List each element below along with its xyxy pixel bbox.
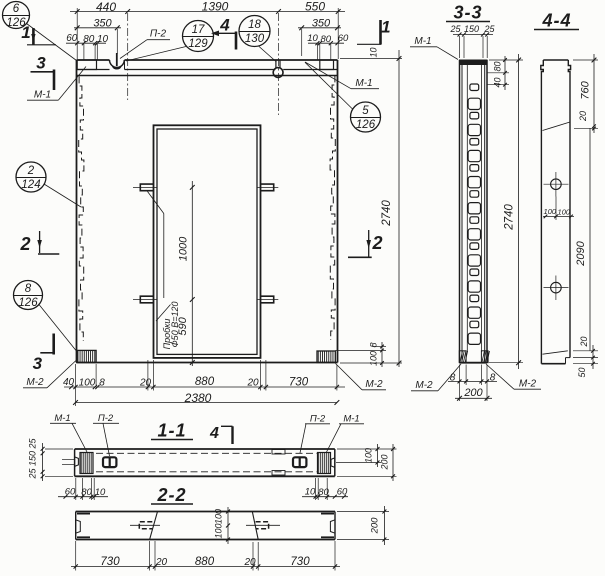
svg-text:80: 80 (318, 487, 329, 498)
svg-text:25: 25 (449, 24, 461, 34)
svg-text:590: 590 (177, 316, 189, 335)
svg-text:100: 100 (558, 207, 571, 216)
svg-text:100: 100 (214, 523, 224, 538)
svg-text:М-1: М-1 (414, 36, 431, 47)
svg-text:730: 730 (100, 556, 120, 568)
svg-text:100: 100 (214, 509, 224, 524)
svg-text:80: 80 (493, 61, 503, 71)
svg-text:60: 60 (338, 33, 349, 44)
svg-text:П-2: П-2 (310, 414, 326, 425)
svg-text:8: 8 (99, 377, 105, 388)
svg-text:10: 10 (305, 487, 316, 498)
svg-text:150: 150 (464, 24, 479, 34)
svg-text:М-1: М-1 (54, 413, 70, 424)
svg-text:2: 2 (27, 165, 35, 177)
svg-text:20: 20 (243, 557, 256, 568)
svg-text:М-2: М-2 (415, 380, 433, 391)
svg-text:60: 60 (66, 33, 78, 44)
svg-text:5: 5 (362, 105, 369, 117)
svg-text:60: 60 (65, 487, 76, 498)
svg-text:П-2: П-2 (150, 29, 167, 40)
svg-text:100: 100 (544, 207, 557, 216)
svg-text:20: 20 (139, 377, 152, 388)
svg-text:4: 4 (219, 16, 230, 35)
svg-text:20: 20 (578, 111, 588, 122)
svg-text:80: 80 (81, 487, 92, 498)
svg-text:3: 3 (36, 54, 46, 73)
svg-text:18: 18 (248, 19, 261, 31)
svg-text:10: 10 (369, 47, 379, 57)
svg-text:440: 440 (96, 0, 116, 14)
svg-text:880: 880 (195, 556, 215, 568)
svg-text:200: 200 (380, 454, 390, 470)
svg-text:10: 10 (307, 33, 318, 44)
svg-text:25: 25 (28, 438, 38, 450)
svg-text:350: 350 (93, 18, 112, 30)
svg-text:130: 130 (245, 33, 265, 45)
svg-text:350: 350 (312, 18, 331, 30)
svg-text:М-1: М-1 (355, 78, 372, 89)
svg-text:17: 17 (192, 24, 205, 36)
svg-text:3-3: 3-3 (453, 3, 482, 23)
svg-text:100: 100 (364, 448, 374, 463)
svg-text:М-1: М-1 (343, 414, 359, 425)
svg-text:100: 100 (79, 377, 96, 388)
svg-text:60: 60 (337, 487, 348, 498)
svg-text:730: 730 (289, 376, 309, 388)
svg-text:760: 760 (580, 80, 592, 99)
svg-text:150: 150 (28, 451, 38, 466)
svg-text:200: 200 (463, 387, 483, 399)
svg-text:2380: 2380 (184, 391, 212, 405)
svg-text:880: 880 (195, 376, 215, 388)
svg-text:80: 80 (83, 34, 95, 45)
svg-text:1: 1 (381, 18, 390, 37)
svg-text:М-2: М-2 (365, 379, 383, 390)
svg-text:2: 2 (371, 233, 382, 253)
svg-text:200: 200 (370, 517, 381, 535)
svg-text:6: 6 (13, 3, 20, 15)
svg-text:8: 8 (25, 283, 32, 295)
svg-text:100: 100 (369, 351, 379, 366)
svg-text:4: 4 (209, 425, 219, 442)
svg-text:10: 10 (97, 34, 109, 45)
svg-text:25: 25 (483, 24, 495, 34)
svg-text:1390: 1390 (202, 0, 229, 14)
svg-text:8: 8 (369, 342, 379, 347)
svg-text:124: 124 (21, 179, 40, 191)
svg-text:8: 8 (490, 373, 496, 384)
svg-text:2090: 2090 (575, 240, 587, 266)
svg-text:40: 40 (63, 377, 75, 388)
svg-text:550: 550 (305, 0, 325, 14)
svg-text:80: 80 (321, 34, 332, 45)
svg-text:1: 1 (21, 23, 30, 42)
svg-text:М-2: М-2 (519, 379, 537, 390)
svg-text:М-1: М-1 (34, 90, 51, 101)
svg-text:М-2: М-2 (26, 377, 44, 388)
svg-text:2: 2 (19, 234, 30, 254)
svg-text:2740: 2740 (381, 200, 393, 227)
svg-text:40: 40 (493, 77, 503, 87)
svg-text:4-4: 4-4 (541, 11, 571, 31)
svg-text:П-2: П-2 (98, 413, 114, 424)
svg-text:20: 20 (246, 377, 259, 388)
svg-text:129: 129 (188, 38, 208, 50)
svg-text:25: 25 (28, 468, 38, 480)
svg-text:126: 126 (356, 119, 376, 131)
svg-text:730: 730 (290, 556, 310, 568)
svg-text:50: 50 (577, 367, 587, 377)
svg-text:3: 3 (33, 354, 43, 373)
svg-text:2740: 2740 (504, 204, 516, 231)
svg-text:2-2: 2-2 (156, 485, 186, 505)
svg-text:126: 126 (18, 297, 38, 309)
svg-text:1-1: 1-1 (157, 421, 186, 441)
svg-text:1000: 1000 (178, 236, 190, 261)
svg-text:20: 20 (579, 336, 589, 347)
svg-text:20: 20 (155, 557, 168, 568)
svg-text:10: 10 (95, 487, 106, 498)
